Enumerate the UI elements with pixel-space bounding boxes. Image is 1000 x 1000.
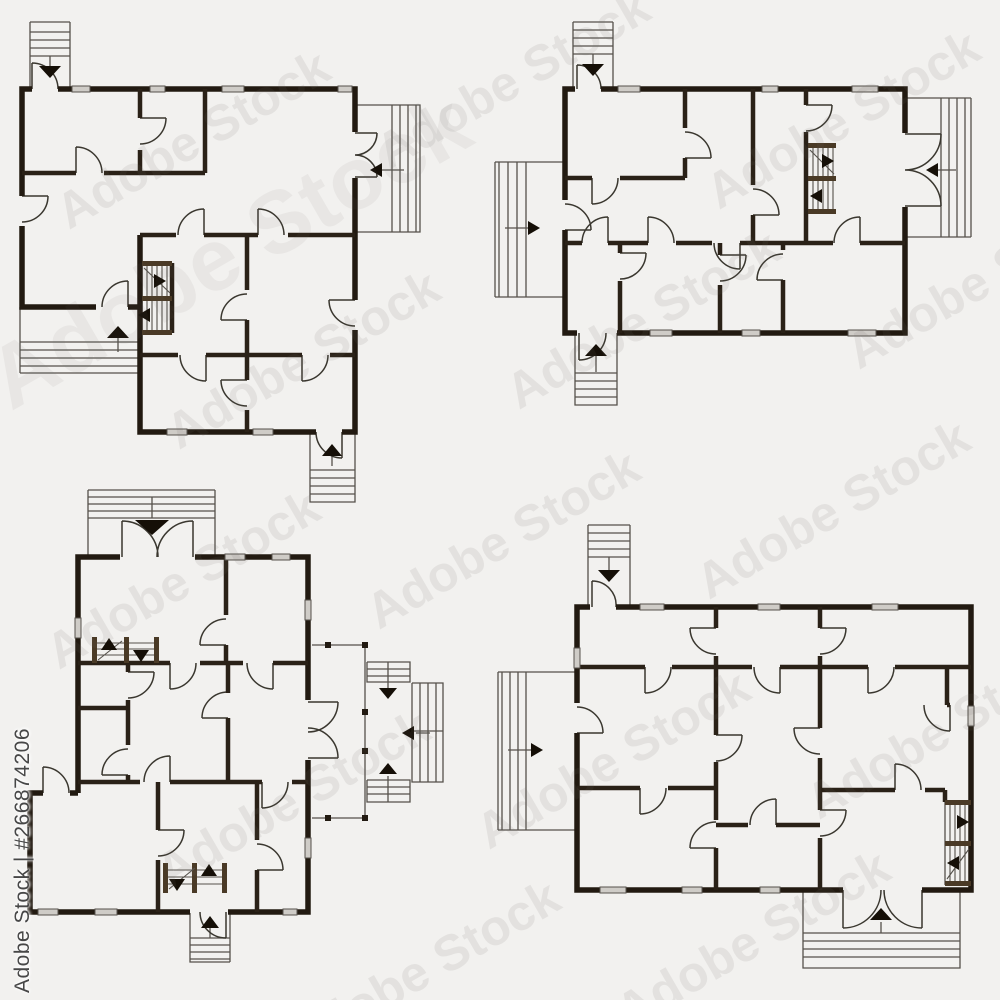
- window-marker: [852, 86, 878, 92]
- direction-arrows: [528, 64, 938, 356]
- windows: [618, 86, 878, 336]
- down-arrow: [169, 879, 185, 891]
- stair-bar: [124, 637, 129, 663]
- floor-plan-top-right: [495, 22, 971, 405]
- window-marker: [338, 86, 352, 92]
- window-marker: [600, 887, 626, 893]
- deck-post: [325, 642, 331, 648]
- adobe-stock-attribution: Adobe Stock | #266874206: [10, 728, 36, 993]
- floor-plan-bottom-right: [498, 525, 974, 968]
- left-arrow: [947, 856, 959, 870]
- window-marker: [682, 887, 702, 893]
- up-arrow: [322, 444, 342, 456]
- interior-walls: [565, 89, 905, 333]
- window-marker: [75, 618, 81, 638]
- exterior-walls: [565, 89, 905, 333]
- deck-post: [362, 709, 368, 715]
- stair-porch-lines: [498, 525, 960, 968]
- stair-bar: [192, 863, 197, 893]
- exterior-walls: [30, 557, 308, 912]
- windows: [574, 604, 974, 893]
- deck-post: [362, 815, 368, 821]
- window-marker: [574, 648, 580, 668]
- window-marker: [95, 909, 117, 915]
- right-arrow: [957, 815, 969, 829]
- stair-porch-lines: [88, 490, 443, 962]
- down-arrow: [379, 688, 397, 699]
- deck-posts: [325, 642, 368, 821]
- left-arrow: [402, 726, 414, 740]
- stair-bar: [163, 863, 168, 893]
- window-marker: [167, 429, 187, 435]
- floor-plan-top-left: [20, 22, 420, 502]
- window-marker: [872, 604, 898, 610]
- deck-post: [362, 642, 368, 648]
- deck-post: [325, 815, 331, 821]
- window-marker: [72, 86, 90, 92]
- floor-plan-bottom-left: [30, 490, 443, 962]
- down-arrow: [135, 520, 169, 535]
- window-marker: [742, 330, 760, 336]
- exterior-walls: [577, 607, 971, 890]
- down-arrow: [133, 650, 149, 662]
- stair-bar: [142, 296, 172, 301]
- door-swings: [577, 581, 950, 928]
- window-marker: [225, 554, 245, 560]
- window-marker: [760, 887, 780, 893]
- stair-bar: [222, 863, 227, 893]
- stair-bar: [945, 881, 971, 886]
- down-arrow: [39, 66, 61, 78]
- floor-plans-drawing: [0, 0, 1000, 1000]
- stair-bar: [808, 209, 836, 214]
- window-marker: [618, 86, 640, 92]
- window-marker: [758, 604, 780, 610]
- stair-bar: [808, 176, 836, 181]
- left-arrow: [810, 189, 822, 203]
- interior-staircase: [808, 143, 836, 214]
- stair-bar: [945, 800, 971, 805]
- direction-arrows: [101, 520, 414, 928]
- right-arrow: [531, 743, 543, 757]
- door-swings: [22, 63, 377, 458]
- interior-staircase: [142, 261, 172, 335]
- window-marker: [762, 86, 778, 92]
- window-marker: [305, 600, 311, 620]
- interior-walls: [78, 557, 308, 912]
- left-arrow: [926, 163, 938, 177]
- up-arrow: [101, 638, 117, 650]
- up-arrow: [379, 763, 397, 774]
- window-marker: [650, 330, 672, 336]
- stair-bar: [808, 143, 836, 148]
- direction-arrows: [39, 66, 382, 456]
- stair-bar: [142, 330, 172, 335]
- window-marker: [305, 838, 311, 858]
- stair-bar: [142, 261, 172, 266]
- up-arrow: [107, 326, 129, 338]
- window-marker: [283, 909, 297, 915]
- deck-post: [362, 748, 368, 754]
- stair-bar: [92, 637, 97, 663]
- window-marker: [848, 330, 876, 336]
- right-arrow: [528, 221, 540, 235]
- down-arrow: [582, 64, 604, 76]
- window-marker: [272, 554, 290, 560]
- stair-porch-lines: [495, 22, 971, 405]
- window-marker: [253, 429, 273, 435]
- window-marker: [968, 706, 974, 726]
- window-marker: [38, 909, 58, 915]
- left-arrow: [370, 163, 382, 177]
- right-arrow: [154, 274, 166, 288]
- window-marker: [222, 86, 244, 92]
- stair-bar: [945, 841, 971, 846]
- interior-staircase: [163, 863, 227, 893]
- interior-staircase: [945, 800, 971, 886]
- stair-bar: [154, 637, 159, 663]
- up-arrow: [201, 916, 219, 928]
- down-arrow: [598, 570, 620, 582]
- window-marker: [150, 86, 165, 92]
- windows: [72, 86, 352, 435]
- door-swings: [43, 521, 338, 938]
- interior-walls: [577, 607, 971, 890]
- direction-arrows: [531, 570, 969, 920]
- window-marker: [640, 604, 664, 610]
- blueprint-canvas: Adobe Stock Adobe Stock Adobe Stock Adob…: [0, 0, 1000, 1000]
